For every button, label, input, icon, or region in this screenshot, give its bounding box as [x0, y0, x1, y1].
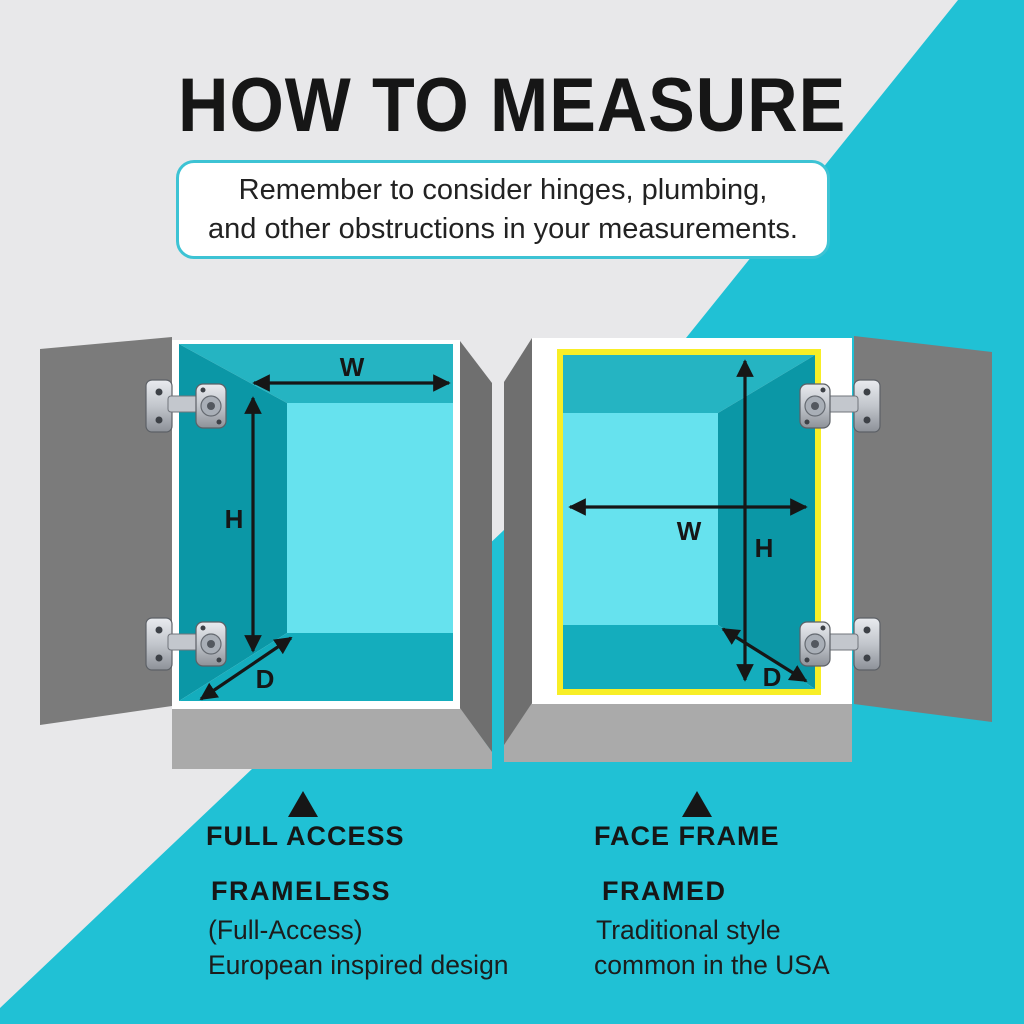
- left-depth-label: D: [256, 664, 275, 694]
- left-width-label: W: [340, 352, 365, 382]
- right-depth-label: D: [763, 662, 782, 692]
- left-detail-2: European inspired design: [208, 950, 509, 981]
- left-cabinet: W H D: [40, 337, 492, 769]
- right-detail-2: common in the USA: [594, 950, 830, 981]
- right-width-label: W: [677, 516, 702, 546]
- left-height-label: H: [225, 504, 244, 534]
- left-detail-1: (Full-Access): [208, 915, 363, 946]
- triangle-marker-right: [682, 791, 712, 817]
- left-caption: FULL ACCESS: [206, 821, 405, 852]
- right-cabinet: W H D: [504, 336, 992, 762]
- right-detail-1: Traditional style: [596, 915, 781, 946]
- note-line-2: and other obstructions in your measureme…: [179, 210, 827, 249]
- note-box: Remember to consider hinges, plumbing, a…: [176, 160, 830, 259]
- left-cabinet-back-panel: [287, 403, 453, 633]
- left-cabinet-base: [172, 708, 492, 769]
- right-caption: FACE FRAME: [594, 821, 780, 852]
- left-cabinet-side-panel: [460, 341, 492, 752]
- right-style-label: FRAMED: [602, 876, 727, 907]
- infographic-page: W H D W H D HOW TO MEASUR: [0, 0, 1024, 1024]
- diagram-canvas: W H D W H D: [0, 0, 1024, 1024]
- note-line-1: Remember to consider hinges, plumbing,: [179, 171, 827, 210]
- triangle-marker-left: [288, 791, 318, 817]
- page-title: HOW TO MEASURE: [0, 62, 1024, 149]
- right-cabinet-base: [504, 703, 852, 762]
- right-cabinet-side-panel: [504, 338, 532, 760]
- left-style-label: FRAMELESS: [211, 876, 391, 907]
- right-height-label: H: [755, 533, 774, 563]
